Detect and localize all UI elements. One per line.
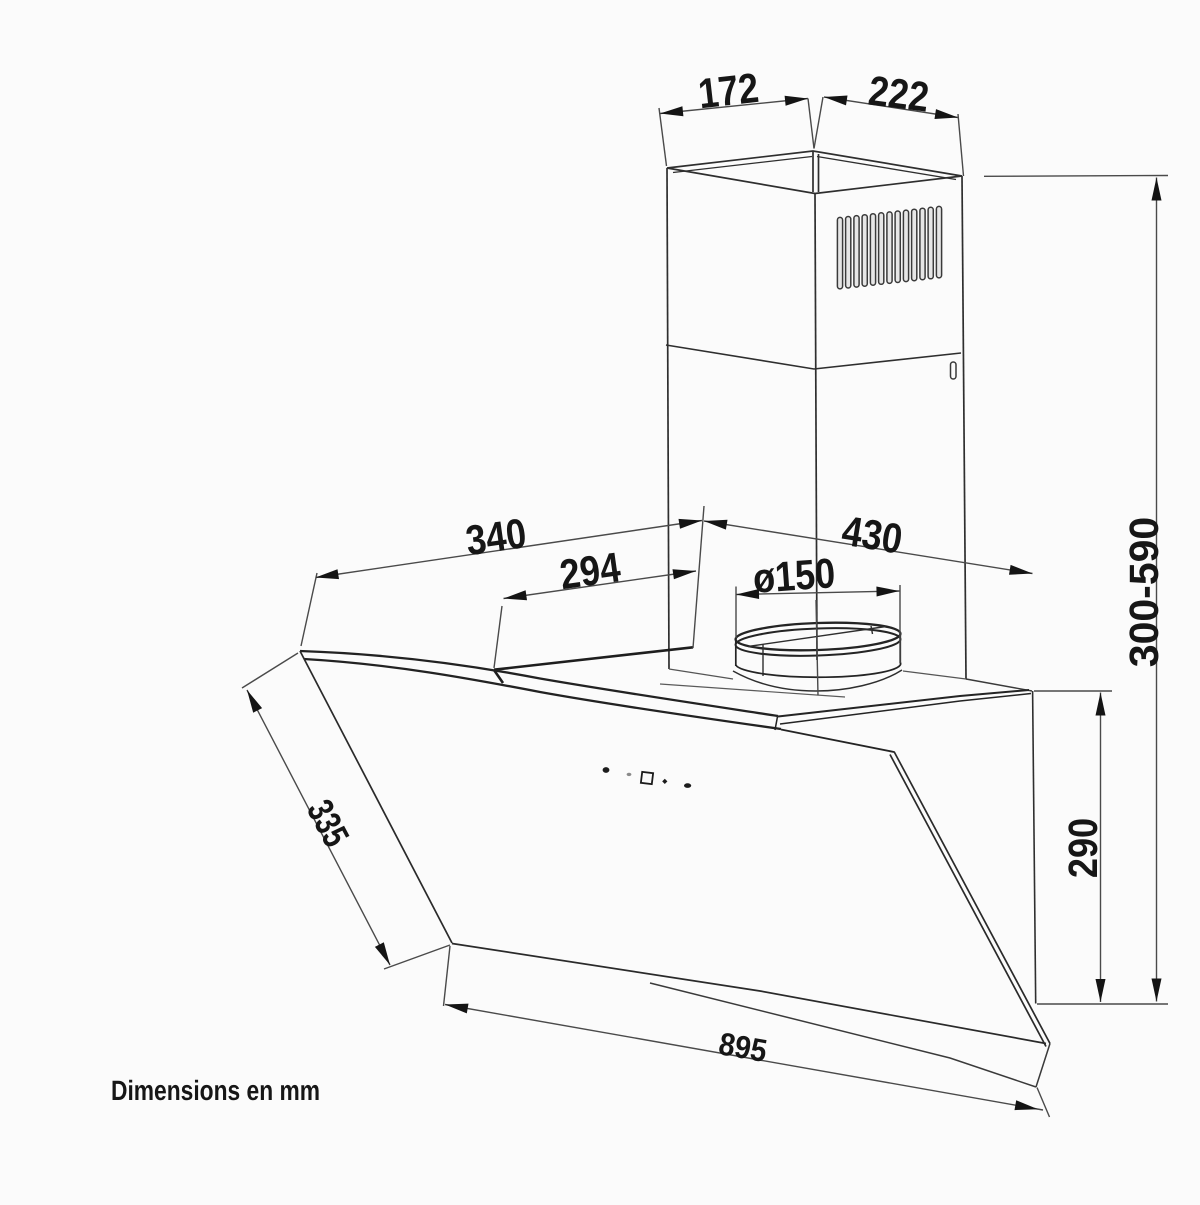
svg-text:172: 172 (696, 64, 761, 118)
svg-text:Dimensions en mm: Dimensions en mm (111, 1075, 320, 1106)
svg-text:340: 340 (463, 509, 529, 564)
svg-text:300-590: 300-590 (1121, 517, 1167, 667)
svg-text:ø150: ø150 (751, 549, 836, 602)
svg-text:294: 294 (557, 543, 624, 598)
svg-text:290: 290 (1060, 818, 1106, 878)
svg-text:222: 222 (866, 67, 932, 121)
svg-text:430: 430 (839, 507, 906, 563)
